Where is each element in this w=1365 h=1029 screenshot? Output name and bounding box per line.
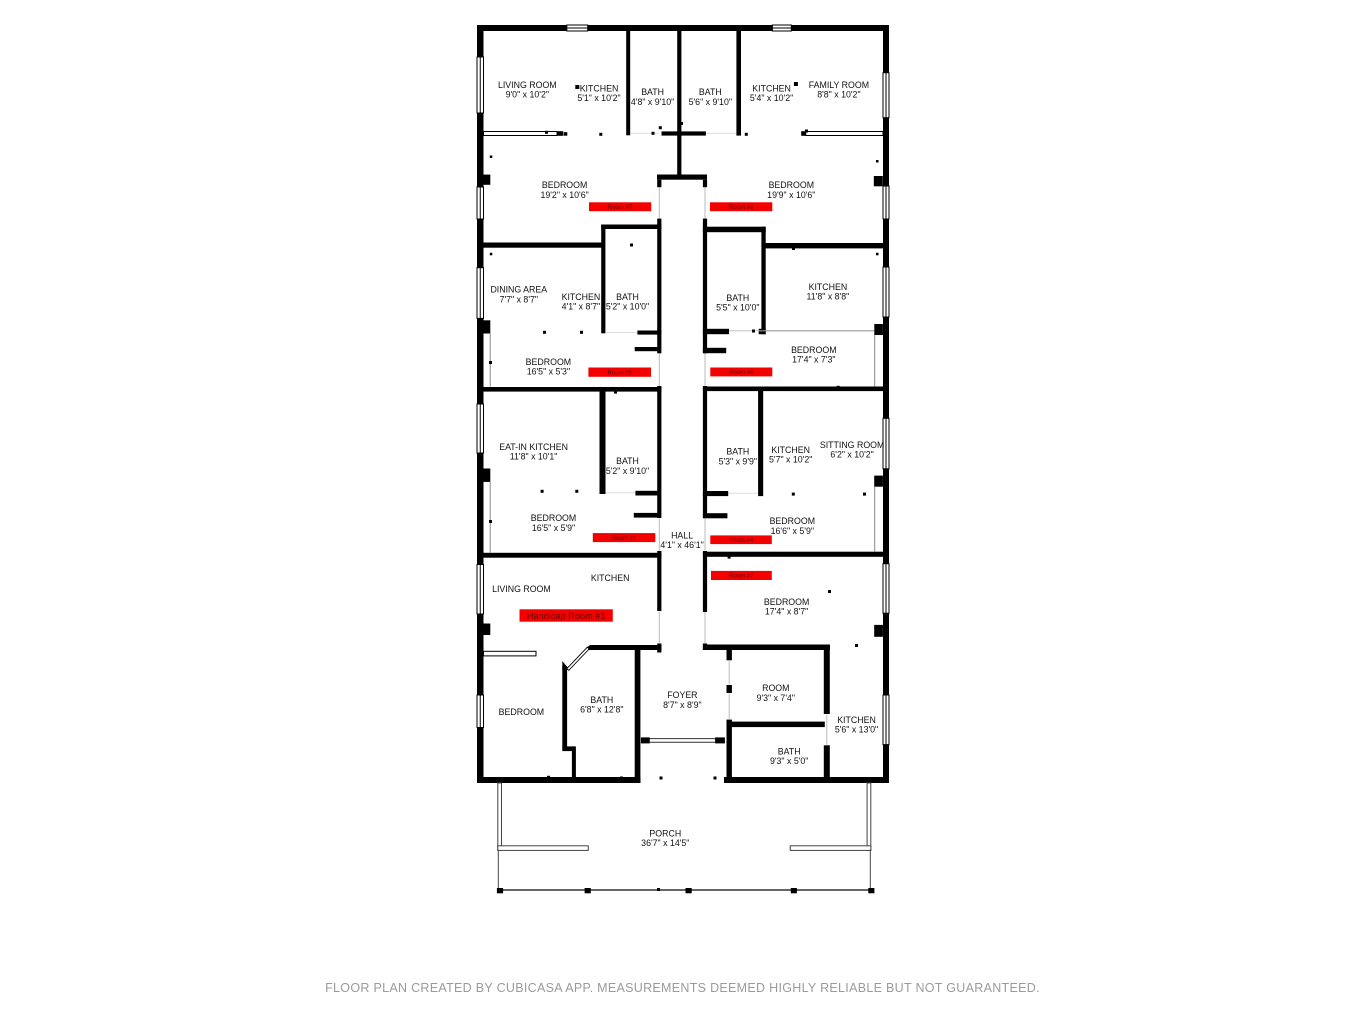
svg-text:5'3" x 9'9": 5'3" x 9'9"	[719, 456, 757, 466]
svg-text:BATH: BATH	[726, 447, 749, 457]
svg-text:5'1" x 10'2": 5'1" x 10'2"	[577, 93, 620, 103]
svg-text:LIVING ROOM: LIVING ROOM	[492, 584, 551, 594]
svg-text:16'6" x 5'9": 16'6" x 5'9"	[771, 526, 814, 536]
svg-text:FAMILY ROOM: FAMILY ROOM	[809, 80, 869, 90]
svg-text:BEDROOM: BEDROOM	[770, 516, 815, 526]
svg-text:7'7" x 8'7": 7'7" x 8'7"	[500, 294, 538, 304]
svg-text:Room #6: Room #6	[729, 370, 754, 376]
svg-text:9'3" x 5'0": 9'3" x 5'0"	[770, 756, 808, 766]
svg-text:BEDROOM: BEDROOM	[791, 345, 836, 355]
svg-text:SITTING ROOM: SITTING ROOM	[820, 440, 885, 450]
svg-text:BATH: BATH	[778, 747, 801, 757]
svg-text:17'4" x 8'7": 17'4" x 8'7"	[765, 607, 808, 617]
svg-text:9'0" x 10'2": 9'0" x 10'2"	[506, 90, 549, 100]
svg-text:4'1" x 46'1": 4'1" x 46'1"	[660, 540, 703, 550]
svg-text:5'2" x 9'10": 5'2" x 9'10"	[606, 466, 649, 476]
svg-text:5'6" x 9'10": 5'6" x 9'10"	[689, 97, 732, 107]
svg-text:36'7" x 14'5": 36'7" x 14'5"	[641, 838, 689, 848]
svg-text:BATH: BATH	[641, 87, 664, 97]
svg-text:Room #2: Room #2	[729, 574, 754, 580]
svg-text:6'2" x 10'2": 6'2" x 10'2"	[830, 450, 873, 460]
svg-text:4'8" x 9'10": 4'8" x 9'10"	[631, 97, 674, 107]
svg-text:FOYER: FOYER	[667, 690, 697, 700]
svg-text:6'8" x 12'8": 6'8" x 12'8"	[580, 705, 623, 715]
svg-text:HALL: HALL	[671, 530, 693, 540]
svg-text:Room #7: Room #7	[608, 205, 633, 211]
svg-text:Handicap Room #1: Handicap Room #1	[527, 611, 606, 621]
svg-text:BEDROOM: BEDROOM	[531, 513, 576, 523]
svg-text:BATH: BATH	[726, 293, 749, 303]
svg-text:8'8" x 10'2": 8'8" x 10'2"	[817, 90, 860, 100]
svg-text:5'4" x 10'2": 5'4" x 10'2"	[750, 93, 793, 103]
svg-text:19'9" x 10'6": 19'9" x 10'6"	[767, 190, 815, 200]
svg-text:5'2" x 10'0": 5'2" x 10'0"	[606, 302, 649, 312]
svg-text:PORCH: PORCH	[649, 829, 681, 839]
svg-text:9'3" x 7'4": 9'3" x 7'4"	[757, 693, 795, 703]
svg-text:KITCHEN: KITCHEN	[837, 715, 876, 725]
svg-text:ROOM: ROOM	[762, 683, 789, 693]
svg-text:19'2" x 10'6": 19'2" x 10'6"	[540, 190, 588, 200]
svg-text:BATH: BATH	[616, 456, 639, 466]
svg-text:KITCHEN: KITCHEN	[562, 292, 601, 302]
svg-text:BEDROOM: BEDROOM	[764, 597, 809, 607]
svg-text:5'6" x 13'0": 5'6" x 13'0"	[835, 725, 878, 735]
svg-text:BEDROOM: BEDROOM	[526, 357, 571, 367]
svg-text:LIVING ROOM: LIVING ROOM	[498, 80, 557, 90]
svg-text:BATH: BATH	[616, 292, 639, 302]
svg-text:DINING AREA: DINING AREA	[490, 285, 547, 295]
svg-text:FLOOR PLAN CREATED BY CUBICASA: FLOOR PLAN CREATED BY CUBICASA APP. MEAS…	[325, 981, 1040, 995]
svg-text:BATH: BATH	[699, 87, 722, 97]
svg-text:KITCHEN: KITCHEN	[580, 83, 619, 93]
svg-text:Room #5: Room #5	[608, 370, 633, 376]
svg-text:5'7" x 10'2": 5'7" x 10'2"	[769, 455, 812, 465]
svg-text:BATH: BATH	[590, 695, 613, 705]
svg-text:BEDROOM: BEDROOM	[769, 180, 814, 190]
svg-text:KITCHEN: KITCHEN	[591, 573, 630, 583]
svg-text:KITCHEN: KITCHEN	[752, 83, 791, 93]
svg-text:11'8" x 10'1": 11'8" x 10'1"	[510, 452, 558, 462]
svg-text:8'7" x 8'9": 8'7" x 8'9"	[663, 700, 701, 710]
svg-text:KITCHEN: KITCHEN	[771, 445, 810, 455]
svg-text:BEDROOM: BEDROOM	[542, 180, 587, 190]
svg-text:11'8" x 8'8": 11'8" x 8'8"	[807, 292, 850, 302]
svg-text:16'5" x 5'3": 16'5" x 5'3"	[527, 367, 570, 377]
svg-text:EAT-IN KITCHEN: EAT-IN KITCHEN	[499, 442, 568, 452]
svg-text:4'1" x 8'7": 4'1" x 8'7"	[562, 302, 600, 312]
svg-text:Room #3: Room #3	[612, 536, 637, 542]
svg-text:17'4" x 7'3": 17'4" x 7'3"	[792, 355, 835, 365]
svg-text:BEDROOM: BEDROOM	[499, 707, 544, 717]
svg-text:Room #8: Room #8	[729, 205, 754, 211]
svg-text:KITCHEN: KITCHEN	[809, 282, 848, 292]
svg-text:16'5" x 5'9": 16'5" x 5'9"	[532, 523, 575, 533]
svg-text:5'5" x 10'0": 5'5" x 10'0"	[716, 303, 759, 313]
svg-text:Room #4: Room #4	[729, 538, 754, 544]
